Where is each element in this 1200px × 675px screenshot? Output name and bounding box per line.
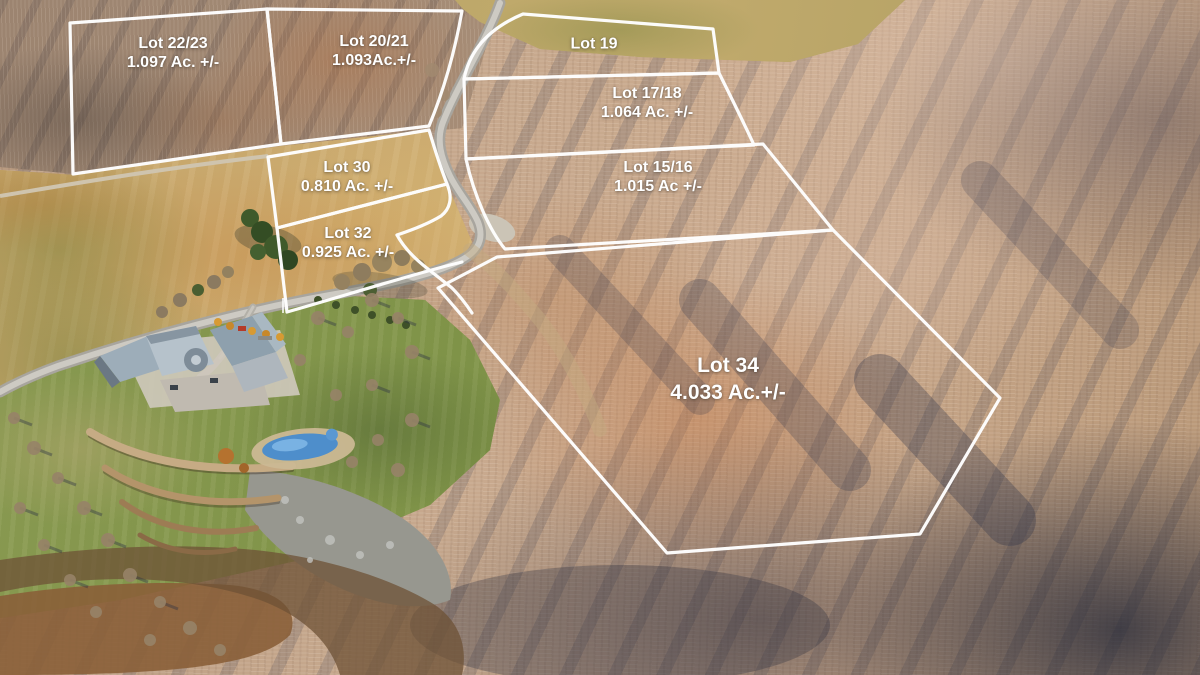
lot-name: Lot 22/23 <box>127 34 219 53</box>
dirt-slope <box>0 583 293 675</box>
lot-label-19: Lot 19 <box>570 35 617 54</box>
lot-name: Lot 20/21 <box>332 32 416 51</box>
lot-acreage: 1.097 Ac. +/- <box>127 53 219 72</box>
lot-label-15-16: Lot 15/16 1.015 Ac +/- <box>614 158 702 196</box>
lot-label-32: Lot 32 0.925 Ac. +/- <box>302 224 394 262</box>
lot-label-22-23: Lot 22/23 1.097 Ac. +/- <box>127 34 219 72</box>
lot-acreage: 4.033 Ac.+/- <box>670 379 785 406</box>
red-equipment <box>238 326 246 331</box>
tower-cap <box>191 355 201 365</box>
lot-name: Lot 30 <box>301 158 393 177</box>
lot-acreage: 0.925 Ac. +/- <box>302 243 394 262</box>
aerial-lot-map: Lot 22/23 1.097 Ac. +/- Lot 20/21 1.093A… <box>0 0 1200 675</box>
orange-tree-small <box>239 463 249 473</box>
lot-name: Lot 17/18 <box>601 84 693 103</box>
orange-tree <box>218 448 234 464</box>
evergreen-cluster <box>232 209 304 270</box>
farm-track <box>0 156 268 196</box>
house-window <box>210 378 218 383</box>
lot-name: Lot 32 <box>302 224 394 243</box>
lot-label-17-18: Lot 17/18 1.064 Ac. +/- <box>601 84 693 122</box>
lot-name: Lot 19 <box>570 35 617 54</box>
lot-acreage: 1.093Ac.+/- <box>332 51 416 70</box>
trailer <box>258 336 272 340</box>
lot-acreage: 1.015 Ac +/- <box>614 177 702 196</box>
house-window <box>170 385 178 390</box>
forest-shadow-streaks <box>560 180 1120 520</box>
lot-name: Lot 15/16 <box>614 158 702 177</box>
lot-acreage: 1.064 Ac. +/- <box>601 103 693 122</box>
lot-name: Lot 34 <box>670 352 785 379</box>
lot-label-30: Lot 30 0.810 Ac. +/- <box>301 158 393 196</box>
lot-acreage: 0.810 Ac. +/- <box>301 177 393 196</box>
forest-shadow-bottom <box>410 565 830 675</box>
lot-label-20-21: Lot 20/21 1.093Ac.+/- <box>332 32 416 70</box>
lot-label-34: Lot 34 4.033 Ac.+/- <box>670 352 785 406</box>
field-tree-row <box>156 266 234 318</box>
